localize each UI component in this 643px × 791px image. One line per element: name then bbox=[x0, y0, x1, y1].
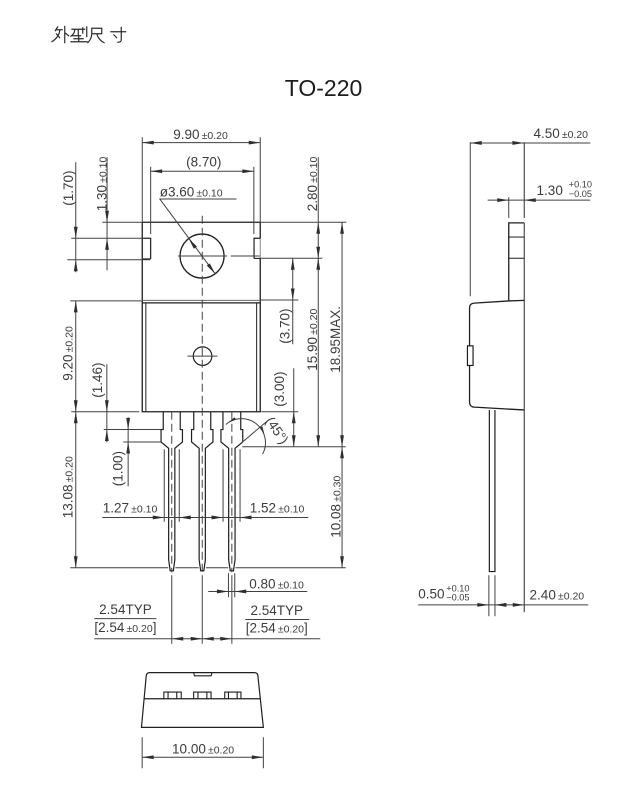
svg-text:ø3.60 ±0.10: ø3.60 ±0.10 bbox=[160, 185, 223, 200]
svg-text:1.27 ±0.10: 1.27 ±0.10 bbox=[103, 500, 158, 515]
svg-text:2.54TYP: 2.54TYP bbox=[99, 602, 152, 617]
svg-text:(3.70): (3.70) bbox=[277, 308, 292, 343]
svg-text:TO-220: TO-220 bbox=[285, 75, 363, 101]
svg-text:0.80 ±0.10: 0.80 ±0.10 bbox=[249, 576, 304, 591]
svg-text:(1.00): (1.00) bbox=[110, 451, 125, 486]
svg-text:(1.46): (1.46) bbox=[90, 362, 105, 397]
svg-text:1.30 ±0.10: 1.30 ±0.10 bbox=[94, 157, 109, 212]
svg-text:15.90 ±0.20: 15.90 ±0.20 bbox=[305, 308, 320, 370]
svg-text:1.30: 1.30 bbox=[537, 183, 563, 198]
svg-text:9.20 ±0.20: 9.20 ±0.20 bbox=[60, 326, 75, 381]
svg-text:−0.05: −0.05 bbox=[446, 593, 469, 603]
svg-text:13.08 ±0.20: 13.08 ±0.20 bbox=[60, 456, 75, 518]
svg-text:(1.70): (1.70) bbox=[61, 170, 76, 205]
svg-text:18.95MAX.: 18.95MAX. bbox=[328, 306, 343, 373]
svg-text:(8.70): (8.70) bbox=[186, 155, 221, 170]
svg-text:−0.05: −0.05 bbox=[569, 189, 592, 199]
svg-text:10.00 ±0.20: 10.00 ±0.20 bbox=[172, 742, 234, 757]
svg-text:2.40 ±0.20: 2.40 ±0.20 bbox=[530, 587, 585, 602]
svg-text:10.08 ±0.30: 10.08 ±0.30 bbox=[328, 475, 343, 537]
svg-text:0.50: 0.50 bbox=[418, 586, 444, 601]
svg-text:2.54TYP: 2.54TYP bbox=[250, 603, 303, 618]
svg-text:[2.54 ±0.20]: [2.54 ±0.20] bbox=[246, 620, 308, 635]
svg-text:2.80 ±0.10: 2.80 ±0.10 bbox=[305, 157, 320, 212]
svg-text:4.50 ±0.20: 4.50 ±0.20 bbox=[533, 126, 588, 141]
svg-text:[2.54 ±0.20]: [2.54 ±0.20] bbox=[94, 620, 156, 635]
svg-text:1.52 ±0.10: 1.52 ±0.10 bbox=[250, 500, 305, 515]
svg-text:(3.00): (3.00) bbox=[272, 371, 287, 406]
svg-text:9.90 ±0.20: 9.90 ±0.20 bbox=[173, 127, 228, 142]
